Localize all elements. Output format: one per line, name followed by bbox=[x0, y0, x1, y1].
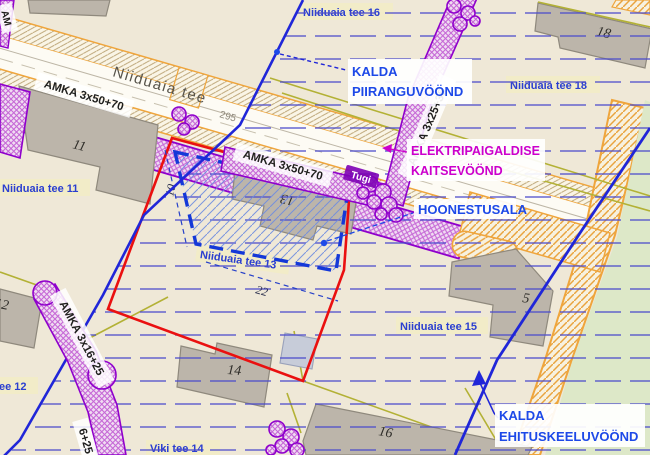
svg-text:ee 12: ee 12 bbox=[0, 381, 27, 393]
street-label-viki-tee-14: Viki tee 14 bbox=[146, 440, 220, 455]
svg-text:KAITSEVÖÖND: KAITSEVÖÖND bbox=[411, 163, 503, 178]
leader-dot bbox=[274, 49, 280, 55]
street-label-niiduaia-16: Niiduaia tee 16 bbox=[299, 3, 393, 20]
svg-text:Niiduaia tee 15: Niiduaia tee 15 bbox=[400, 321, 477, 333]
street-label-niiduaia-11: Niiduaia tee 11 bbox=[0, 179, 90, 196]
svg-text:EHITUSKEELUVÖÖND: EHITUSKEELUVÖÖND bbox=[499, 429, 638, 444]
svg-text:PIIRANGUVÖÖND: PIIRANGUVÖÖND bbox=[352, 84, 463, 99]
leader-dot bbox=[321, 240, 327, 246]
building-number-14: 14 bbox=[227, 363, 242, 379]
svg-text:Viki tee 14: Viki tee 14 bbox=[150, 443, 204, 455]
street-label-niiduaia-18: Niiduaia tee 18 bbox=[506, 76, 600, 93]
street-label-niiduaia-12: ee 12 bbox=[0, 377, 38, 394]
svg-text:HOONESTUSALA: HOONESTUSALA bbox=[418, 202, 528, 217]
building-small-annex bbox=[280, 333, 317, 369]
street-label-niiduaia-15: Niiduaia tee 15 bbox=[396, 317, 488, 334]
detail-plan-map: 11 12 13 14 5 16 18 Niiduaia tee 295 Nii… bbox=[0, 0, 650, 455]
svg-text:KALDA: KALDA bbox=[352, 64, 398, 79]
svg-text:ELEKTRIPAIGALDISE: ELEKTRIPAIGALDISE bbox=[411, 144, 540, 158]
svg-text:KALDA: KALDA bbox=[499, 408, 545, 423]
svg-text:Niiduaia tee 11: Niiduaia tee 11 bbox=[2, 183, 78, 195]
building-fragment-top bbox=[28, 0, 110, 16]
